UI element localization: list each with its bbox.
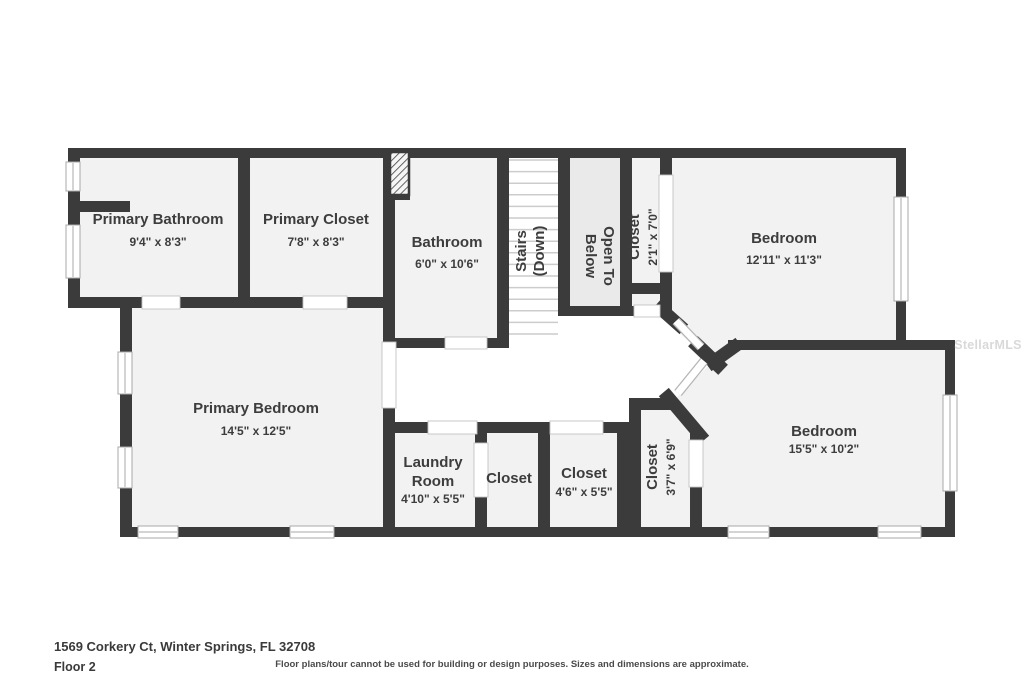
room-dims-laundry: 4'10" x 5'5" xyxy=(401,492,465,506)
room-dims-primary-closet: 7'8" x 8'3" xyxy=(287,235,344,249)
room-label-closet-small: Closet xyxy=(486,470,532,487)
door-opening xyxy=(303,296,347,309)
room-dims-primary-bedroom: 14'5" x 12'5" xyxy=(221,424,291,438)
room-label-open-to-below-1: Open To xyxy=(600,226,617,286)
room-dims-bedroom-top: 12'11" x 11'3" xyxy=(746,253,822,267)
room-label-stairs: Stairs xyxy=(513,230,530,272)
floor-label: Floor 2 xyxy=(54,660,96,674)
door-opening xyxy=(634,305,660,317)
room-label-laundry-1: Laundry xyxy=(403,454,463,471)
address-text: 1569 Corkery Ct, Winter Springs, FL 3270… xyxy=(54,639,315,654)
room-label-closet-mid: Closet xyxy=(561,465,607,482)
room-label-bedroom-bottom: Bedroom xyxy=(791,423,857,440)
room-label-laundry-2: Room xyxy=(412,473,455,490)
room-label-primary-bathroom: Primary Bathroom xyxy=(93,211,224,228)
room-dims-bathroom: 6'0" x 10'6" xyxy=(415,257,479,271)
room-dims-stairs: (Down) xyxy=(531,226,548,277)
room-label-bathroom: Bathroom xyxy=(412,234,483,251)
disclaimer-text: Floor plans/tour cannot be used for buil… xyxy=(275,659,749,670)
room-dims-closet-mid: 4'6" x 5'5" xyxy=(555,485,612,499)
room-dims-closet-bedroom: 3'7" x 6'9" xyxy=(664,438,678,495)
room-label-primary-bedroom: Primary Bedroom xyxy=(193,400,319,417)
floorplan-drawing: Primary Bathroom 9'4" x 8'3" Primary Clo… xyxy=(0,0,1024,682)
room-label-open-to-below-2: Below xyxy=(582,234,599,279)
room-dims-closet-hall: 2'1" x 7'0" xyxy=(646,208,660,265)
floorplan-page: Primary Bathroom 9'4" x 8'3" Primary Clo… xyxy=(0,0,1024,682)
door-opening xyxy=(445,337,487,349)
room-label-bedroom-top: Bedroom xyxy=(751,230,817,247)
room-dims-bedroom-bottom: 15'5" x 10'2" xyxy=(789,442,859,456)
room-dims-primary-bathroom: 9'4" x 8'3" xyxy=(129,235,186,249)
door-opening xyxy=(428,421,477,434)
hatched-shaft xyxy=(390,152,409,195)
door-opening xyxy=(382,342,396,408)
room-label-closet-hall: Closet xyxy=(626,214,643,260)
room-label-primary-closet: Primary Closet xyxy=(263,211,369,228)
door-opening xyxy=(142,296,180,309)
door-opening xyxy=(550,421,603,434)
room-label-closet-bedroom: Closet xyxy=(644,444,661,490)
door-opening xyxy=(689,440,703,487)
watermark: StellarMLS xyxy=(954,338,1022,352)
door-opening xyxy=(659,175,673,272)
